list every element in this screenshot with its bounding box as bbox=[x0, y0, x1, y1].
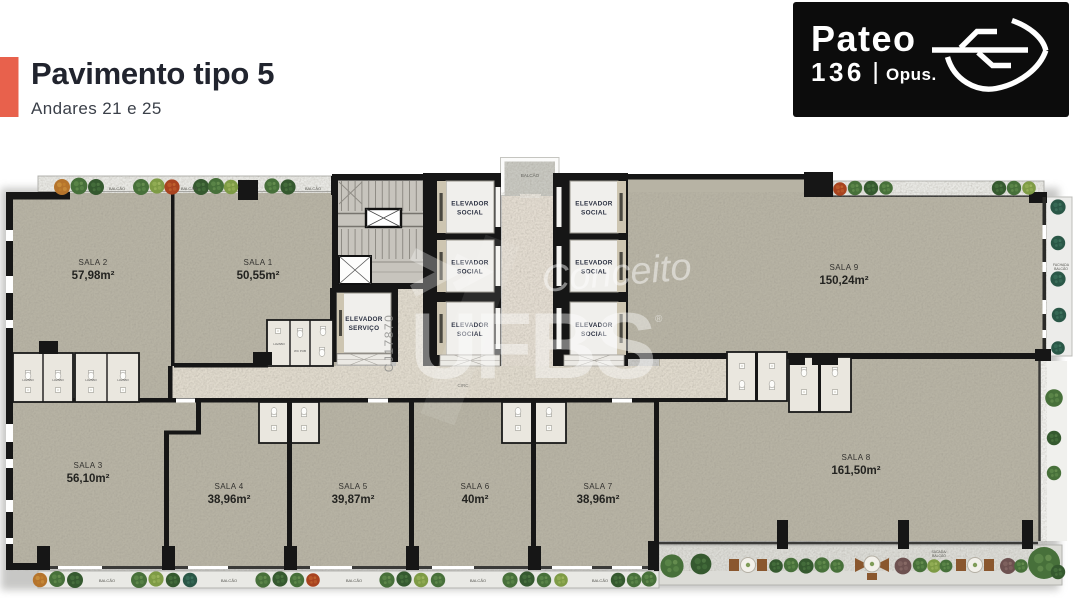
svg-text:SALA 5: SALA 5 bbox=[338, 482, 367, 491]
svg-text:50,55m²: 50,55m² bbox=[237, 270, 280, 282]
svg-text:ELEVADOR: ELEVADOR bbox=[451, 201, 489, 208]
svg-text:39,87m²: 39,87m² bbox=[332, 494, 375, 506]
svg-text:ELEVADOR: ELEVADOR bbox=[575, 322, 613, 329]
svg-text:WC PUB: WC PUB bbox=[294, 349, 306, 353]
svg-text:SALA 2: SALA 2 bbox=[78, 258, 107, 267]
svg-text:BALCÃO: BALCÃO bbox=[221, 578, 237, 583]
svg-text:BALCÃO: BALCÃO bbox=[346, 578, 362, 583]
svg-text:BALCÃO: BALCÃO bbox=[470, 578, 486, 583]
svg-text:SALA 6: SALA 6 bbox=[460, 482, 489, 491]
svg-text:ELEVADOR: ELEVADOR bbox=[345, 316, 383, 323]
svg-text:161,50m²: 161,50m² bbox=[831, 465, 880, 477]
svg-text:SOCIAL: SOCIAL bbox=[581, 210, 607, 217]
svg-text:SOCIAL: SOCIAL bbox=[581, 269, 607, 276]
svg-text:LAVABO: LAVABO bbox=[273, 342, 285, 346]
svg-text:LAVABO: LAVABO bbox=[22, 378, 34, 382]
svg-text:SALA 3: SALA 3 bbox=[73, 461, 102, 470]
svg-text:LAVABO: LAVABO bbox=[117, 378, 129, 382]
svg-text:BALCÃO: BALCÃO bbox=[109, 186, 125, 191]
svg-text:BALCÃO: BALCÃO bbox=[305, 186, 321, 191]
svg-text:SOCIAL: SOCIAL bbox=[457, 210, 483, 217]
svg-text:SOCIAL: SOCIAL bbox=[457, 269, 483, 276]
svg-text:SOCIAL: SOCIAL bbox=[581, 331, 607, 338]
svg-text:SALA 4: SALA 4 bbox=[214, 482, 243, 491]
svg-text:56,10m²: 56,10m² bbox=[67, 473, 110, 485]
svg-text:Pavimento tipo 5: Pavimento tipo 5 bbox=[31, 56, 274, 91]
svg-text:150,24m²: 150,24m² bbox=[819, 275, 868, 287]
svg-text:38,96m²: 38,96m² bbox=[208, 494, 251, 506]
svg-text:SALA 8: SALA 8 bbox=[841, 453, 870, 462]
svg-text:BALCÃO: BALCÃO bbox=[932, 553, 946, 558]
svg-text:SALA 9: SALA 9 bbox=[829, 263, 858, 272]
svg-text:57,98m²: 57,98m² bbox=[72, 270, 115, 282]
svg-text:LAVABO: LAVABO bbox=[52, 378, 64, 382]
svg-text:ELEVADOR: ELEVADOR bbox=[575, 260, 613, 267]
svg-text:Pateo: Pateo bbox=[811, 18, 917, 59]
svg-text:Opus.: Opus. bbox=[886, 65, 937, 84]
svg-text:BALCÃO: BALCÃO bbox=[99, 578, 115, 583]
svg-text:LAVABO: LAVABO bbox=[85, 378, 97, 382]
svg-text:SERVIÇO: SERVIÇO bbox=[349, 325, 380, 332]
svg-text:BALCÃO: BALCÃO bbox=[181, 186, 197, 191]
svg-text:BALCÃO: BALCÃO bbox=[1054, 266, 1068, 271]
svg-text:SALA 1: SALA 1 bbox=[243, 258, 272, 267]
svg-text:SOCIAL: SOCIAL bbox=[457, 331, 483, 338]
svg-text:40m²: 40m² bbox=[462, 494, 489, 506]
svg-text:38,96m²: 38,96m² bbox=[577, 494, 620, 506]
svg-text:BALCÃO: BALCÃO bbox=[592, 578, 608, 583]
svg-text:ELEVADOR: ELEVADOR bbox=[451, 260, 489, 267]
svg-text:ELEVADOR: ELEVADOR bbox=[575, 201, 613, 208]
svg-text:136: 136 bbox=[811, 57, 865, 87]
svg-text:ELEVADOR: ELEVADOR bbox=[451, 322, 489, 329]
svg-text:SALA 7: SALA 7 bbox=[583, 482, 612, 491]
svg-text:Andares 21 e 25: Andares 21 e 25 bbox=[31, 99, 162, 118]
